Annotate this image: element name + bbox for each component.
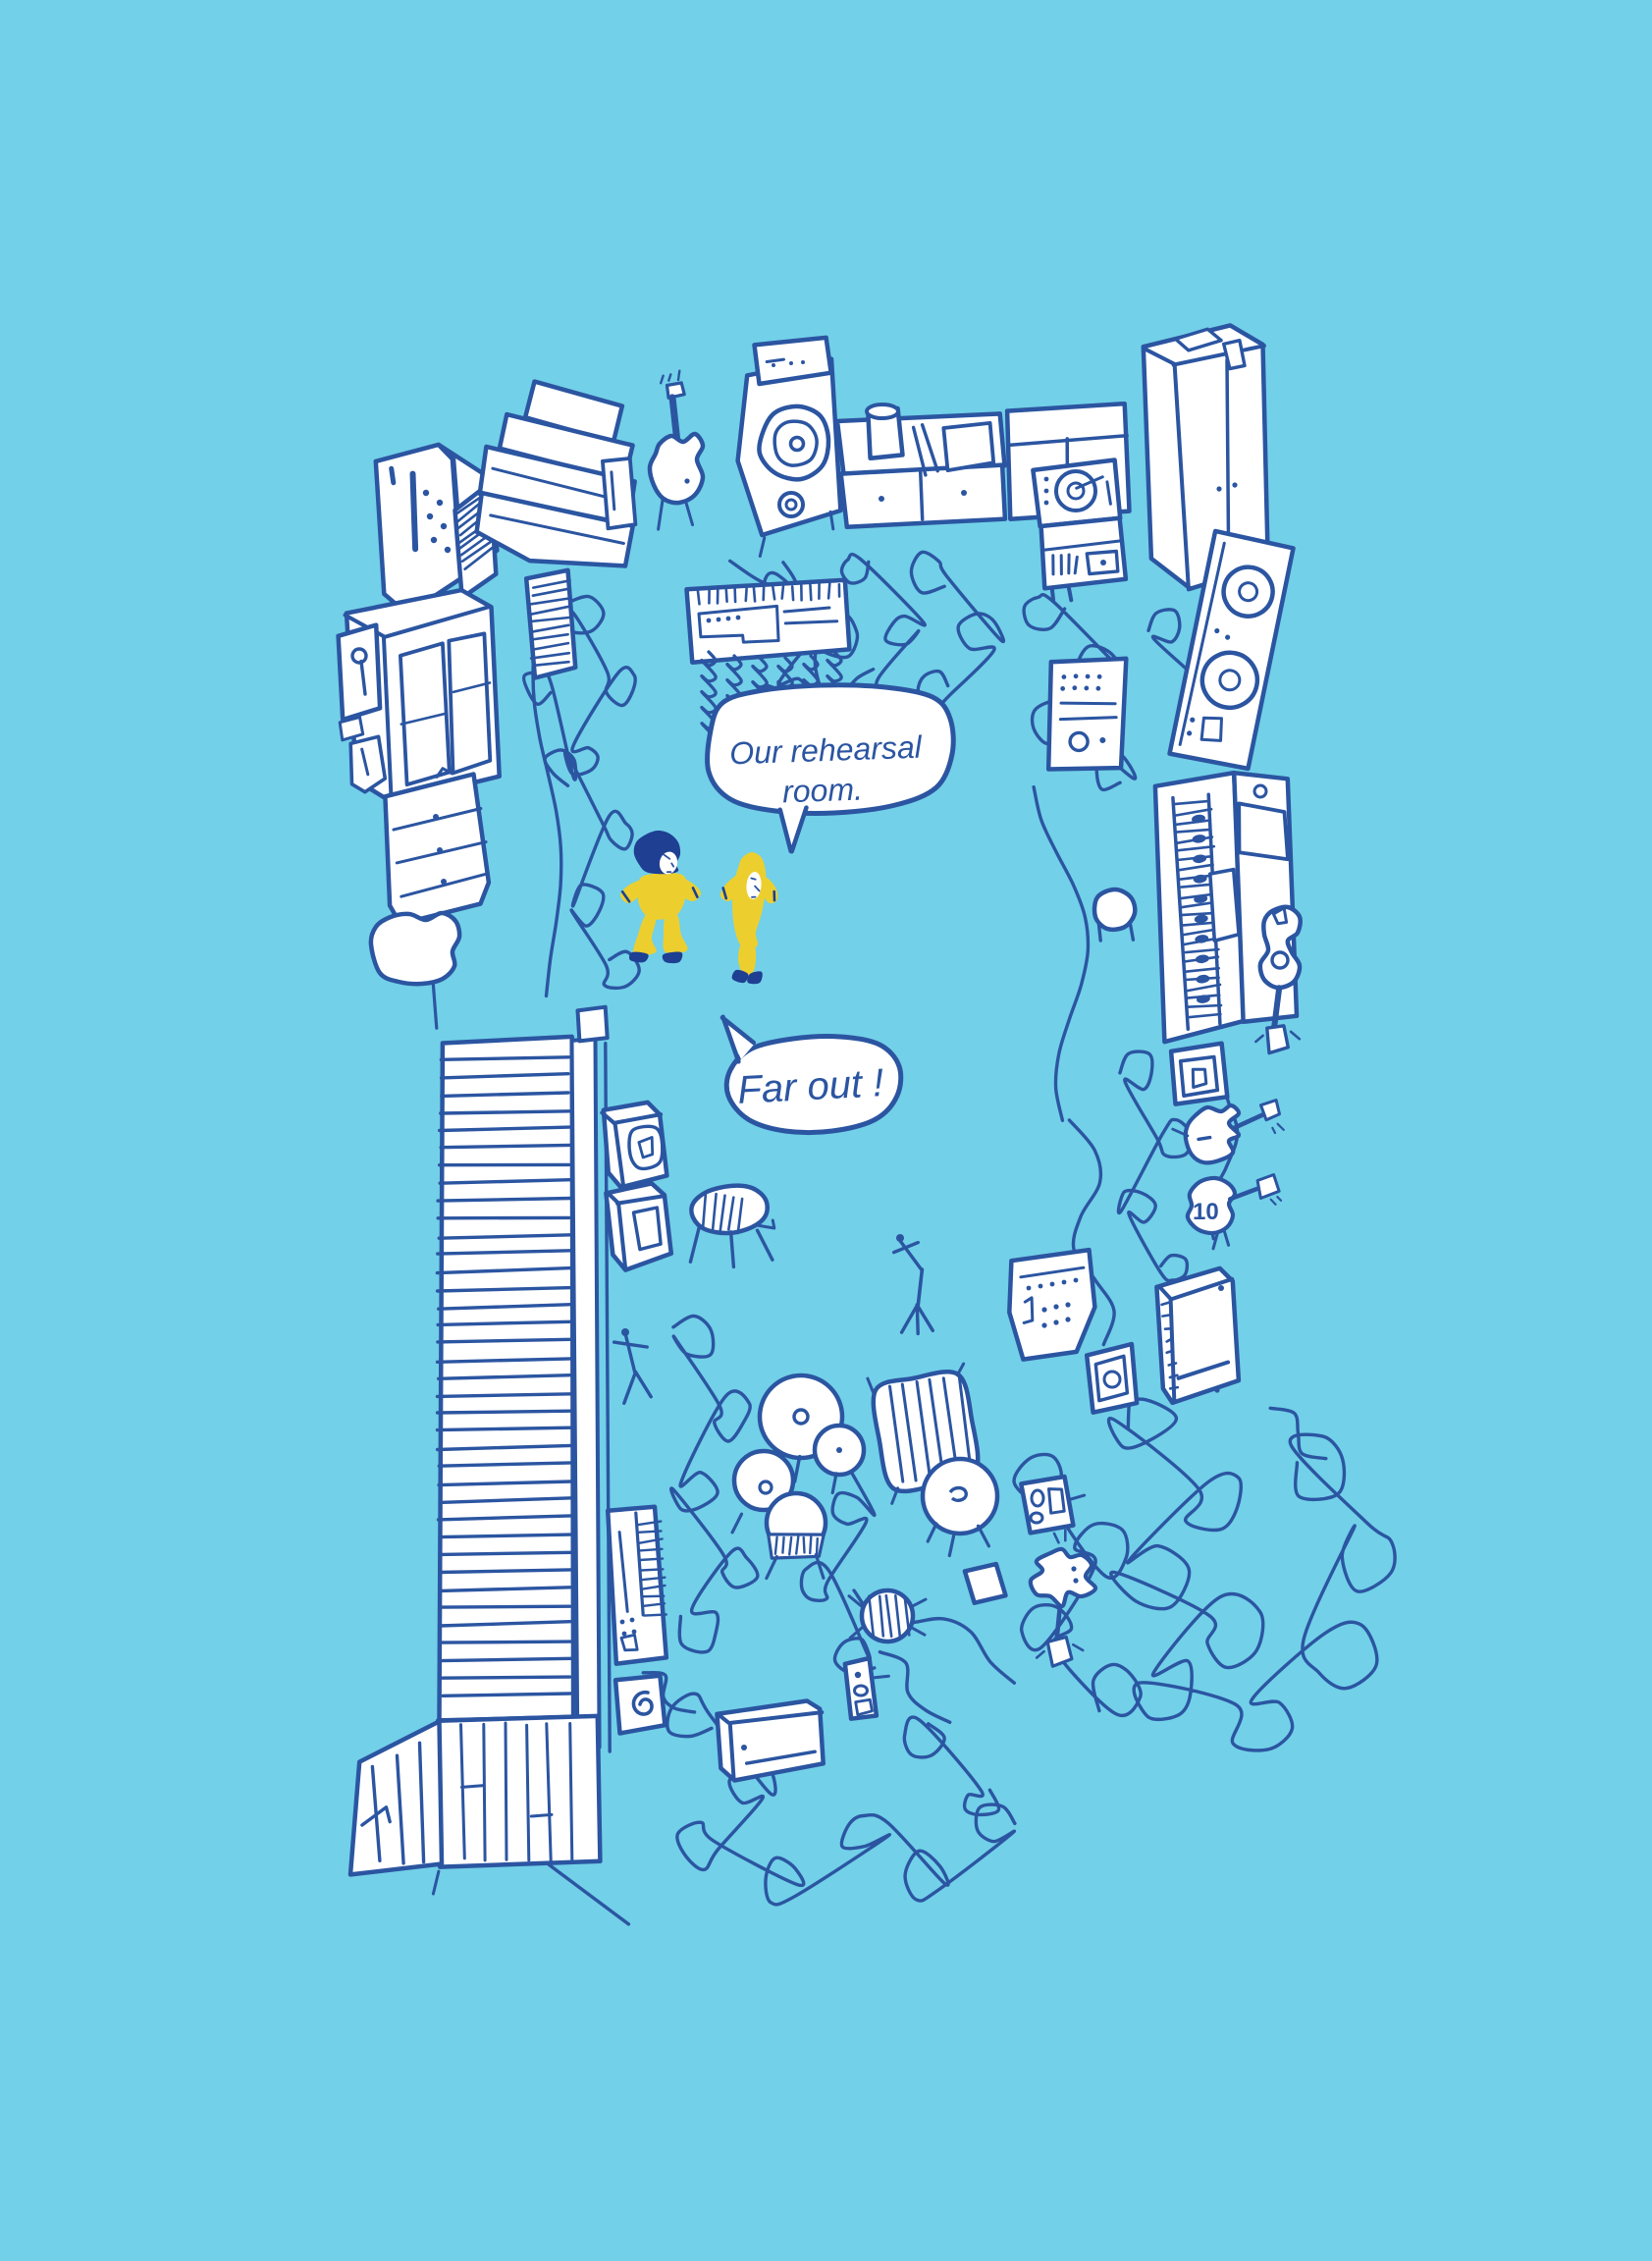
svg-text:10: 10 xyxy=(1193,1199,1219,1225)
svg-text:Our rehearsal: Our rehearsal xyxy=(729,729,924,772)
svg-text:Far out !: Far out ! xyxy=(736,1061,884,1112)
svg-text:room.: room. xyxy=(781,772,863,810)
